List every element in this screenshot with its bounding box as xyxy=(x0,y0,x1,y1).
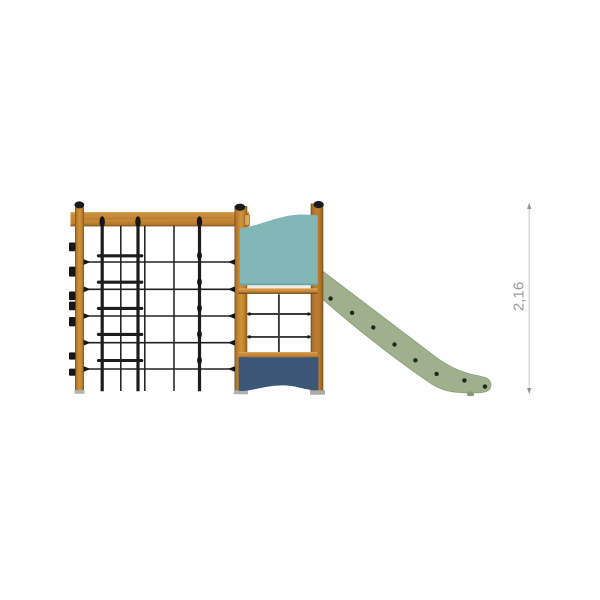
svg-text:2,16: 2,16 xyxy=(511,282,528,312)
